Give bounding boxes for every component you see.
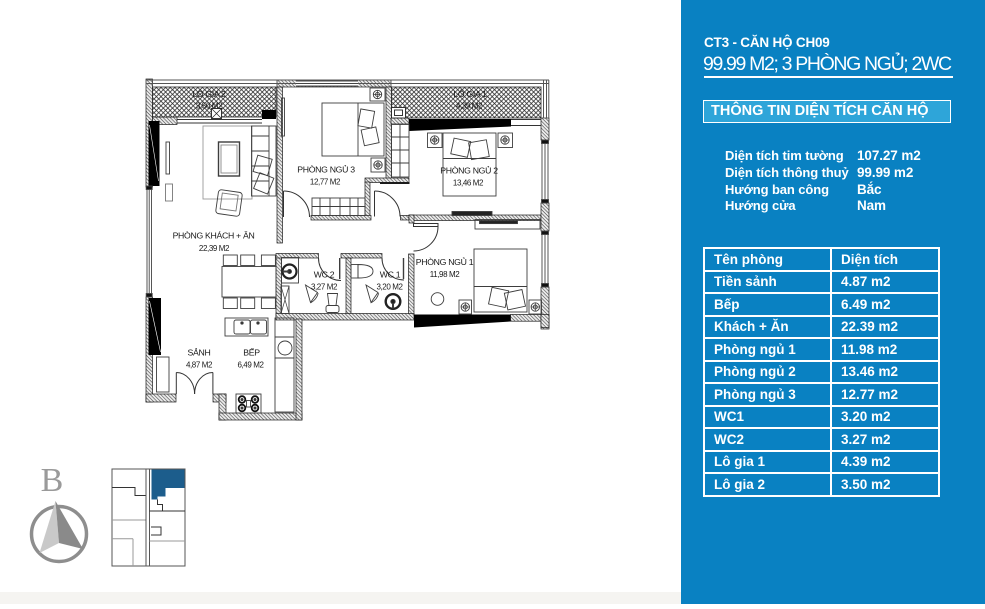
- svg-text:LÔ GIA 2: LÔ GIA 2: [192, 89, 226, 99]
- svg-text:3,27 M2: 3,27 M2: [311, 283, 338, 292]
- svg-text:PHÒNG NGỦ 1: PHÒNG NGỦ 1: [416, 256, 474, 267]
- svg-text:PHÒNG NGỦ 2: PHÒNG NGỦ 2: [440, 165, 498, 176]
- svg-text:12,77 M2: 12,77 M2: [310, 178, 341, 187]
- svg-text:B: B: [41, 462, 64, 499]
- svg-text:22,39 M2: 22,39 M2: [199, 244, 230, 253]
- svg-text:3,50 M2: 3,50 M2: [196, 102, 223, 111]
- svg-text:BẾP: BẾP: [243, 348, 260, 358]
- svg-text:WC 2: WC 2: [314, 270, 335, 280]
- svg-text:PHÒNG NGỦ 3: PHÒNG NGỦ 3: [297, 164, 355, 175]
- svg-text:4,39 M2: 4,39 M2: [456, 102, 483, 111]
- svg-text:3,20 M2: 3,20 M2: [376, 283, 403, 292]
- svg-text:SẢNH: SẢNH: [188, 347, 211, 358]
- svg-text:LÔ GIA 1: LÔ GIA 1: [453, 89, 487, 99]
- svg-text:PHÒNG KHÁCH + ĂN: PHÒNG KHÁCH + ĂN: [173, 231, 255, 241]
- svg-text:13,46 M2: 13,46 M2: [453, 179, 484, 188]
- svg-text:WC 1: WC 1: [380, 270, 401, 280]
- svg-text:11,98 M2: 11,98 M2: [430, 270, 461, 279]
- svg-text:4,87 M2: 4,87 M2: [186, 361, 213, 370]
- svg-text:6,49 M2: 6,49 M2: [237, 361, 264, 370]
